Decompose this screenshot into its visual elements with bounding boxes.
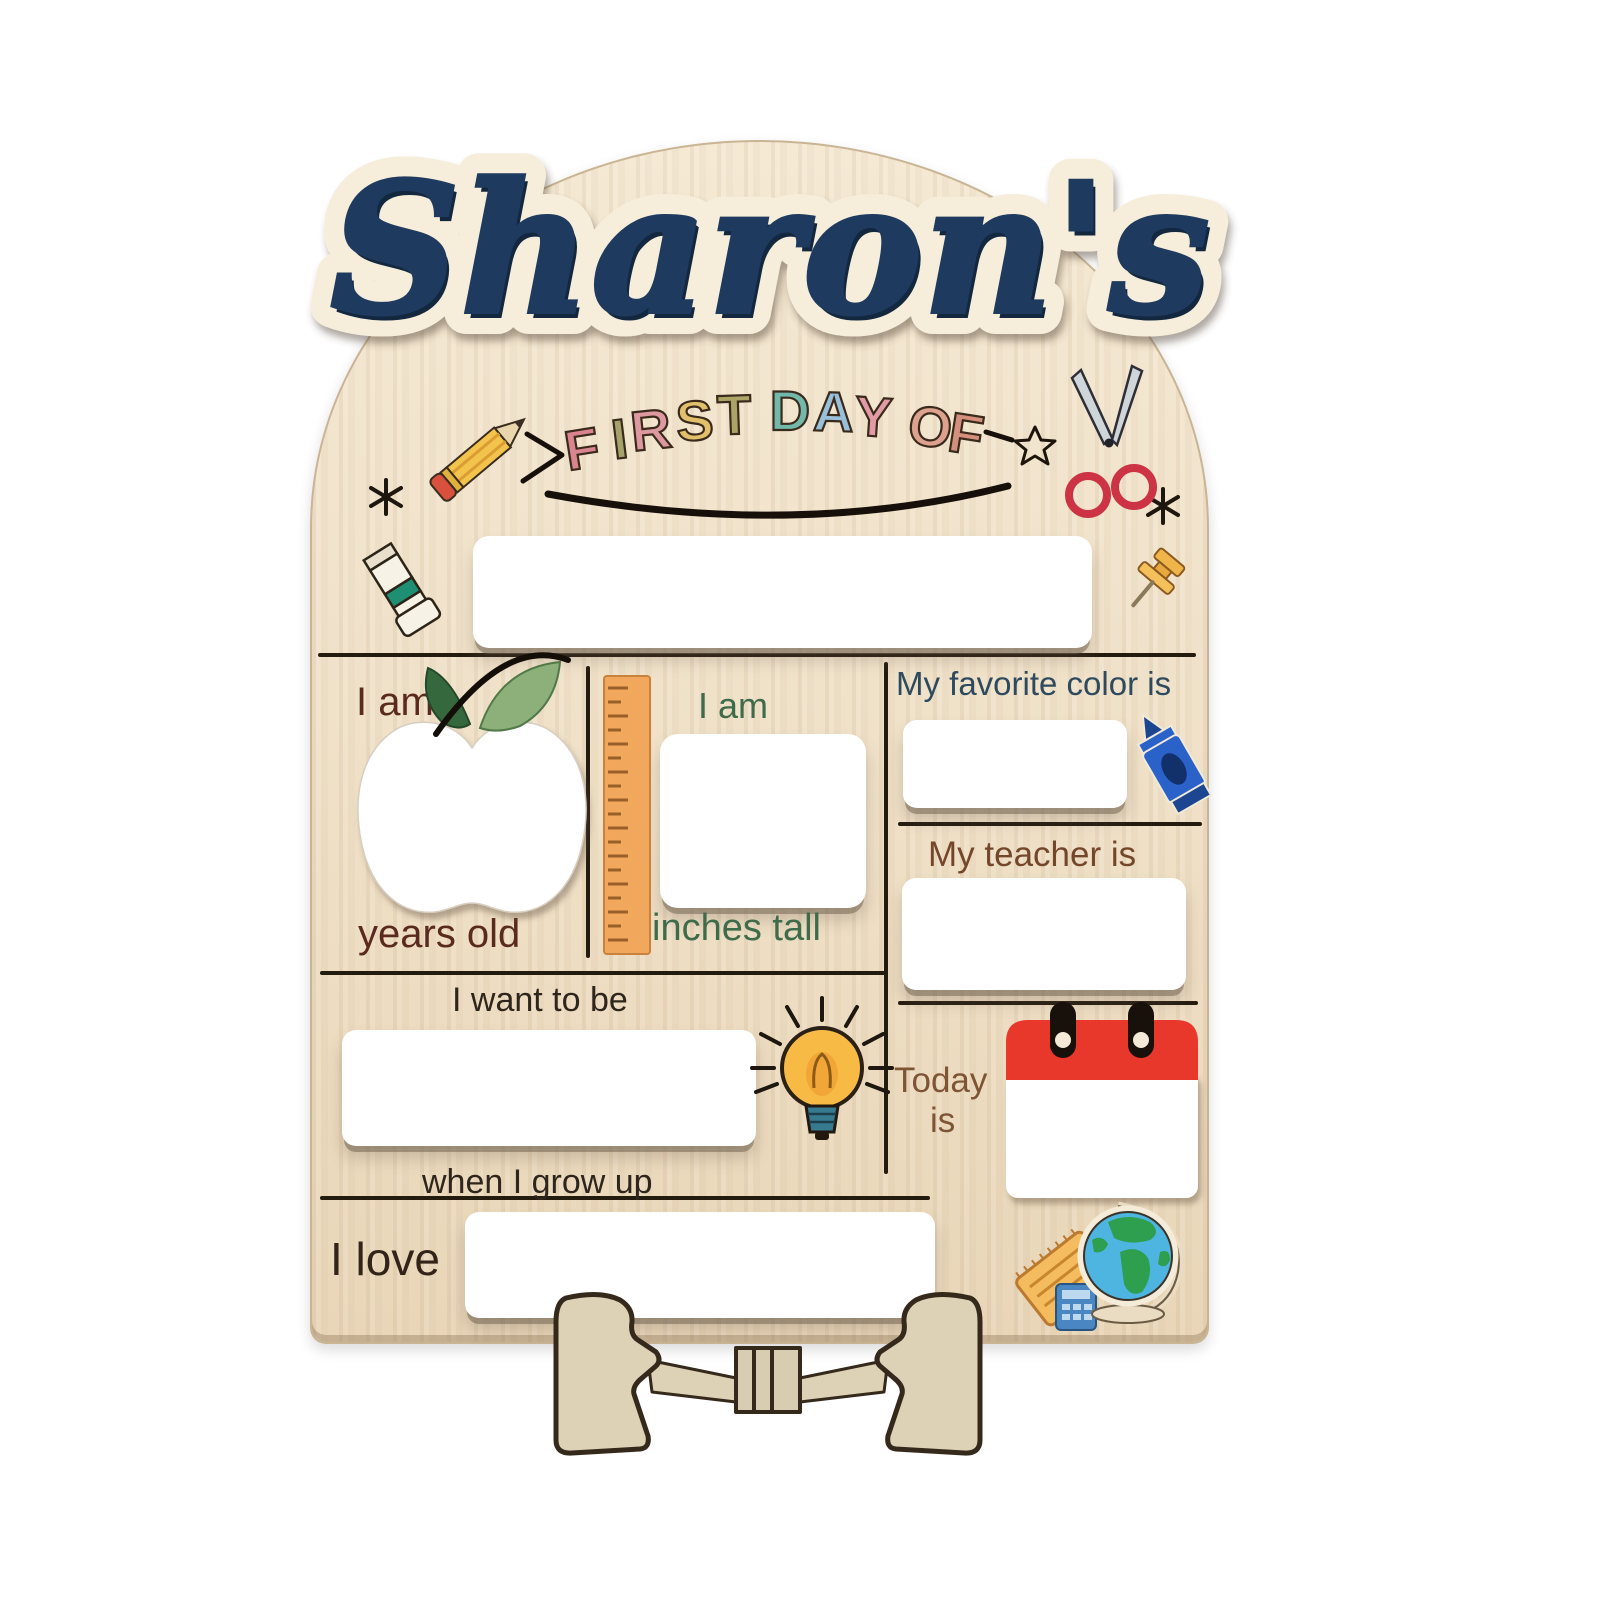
favorite-color-field[interactable] — [903, 720, 1127, 808]
teacher-label: My teacher is — [928, 836, 1136, 875]
product-photo: I am years old I am inches tall My favor… — [0, 0, 1600, 1600]
favorite-color-label: My favorite color is — [896, 666, 1171, 702]
love-field[interactable] — [465, 1212, 935, 1318]
height-suffix-label: inches tall — [652, 908, 821, 950]
divider-line — [898, 1001, 1198, 1005]
today-label-line2: is — [930, 1102, 955, 1141]
school-field[interactable] — [473, 536, 1092, 648]
grow-up-suffix-label: when I grow up — [422, 1164, 653, 1201]
divider-line — [318, 653, 1196, 657]
height-field[interactable] — [660, 734, 866, 908]
divider-line — [884, 662, 888, 1174]
grow-up-field[interactable] — [342, 1030, 756, 1146]
divider-line — [320, 971, 886, 975]
grow-up-prefix-label: I want to be — [452, 982, 628, 1019]
teacher-field[interactable] — [902, 878, 1186, 990]
age-prefix-label: I am — [356, 680, 434, 724]
love-label: I love — [330, 1234, 440, 1285]
age-suffix-label: years old — [358, 912, 520, 956]
divider-line — [586, 666, 590, 958]
height-prefix-label: I am — [698, 686, 768, 726]
divider-line — [898, 822, 1202, 826]
today-label-line1: Today — [894, 1062, 987, 1101]
